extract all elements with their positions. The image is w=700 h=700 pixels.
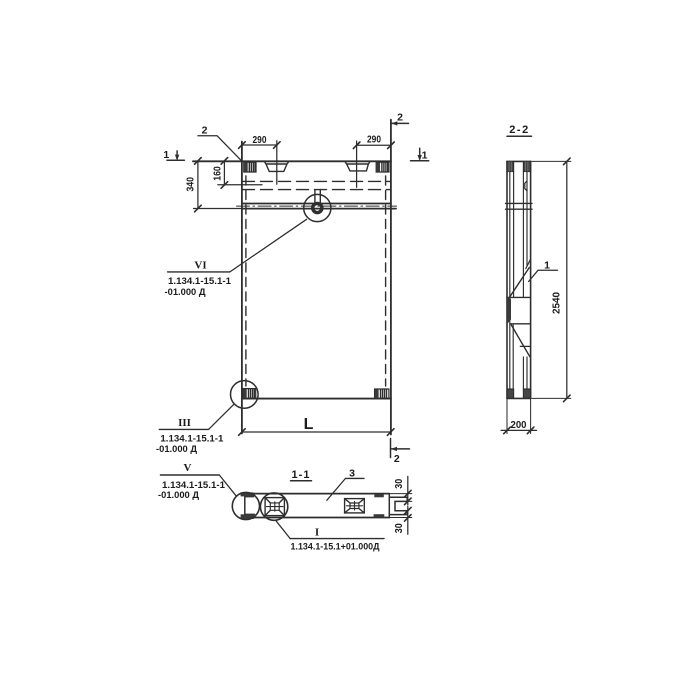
svg-text:III: III: [178, 417, 191, 429]
svg-text:3: 3: [349, 467, 355, 479]
svg-text:30: 30: [394, 478, 405, 488]
svg-text:L: L: [304, 416, 314, 433]
svg-text:1.134.1-15.1-1: 1.134.1-15.1-1: [168, 276, 232, 287]
svg-text:200: 200: [511, 419, 527, 431]
svg-text:1-1: 1-1: [292, 469, 311, 481]
svg-text:1: 1: [422, 149, 428, 161]
svg-text:30: 30: [394, 523, 405, 533]
svg-text:-01.000 Д: -01.000 Д: [165, 287, 206, 298]
svg-text:V: V: [184, 462, 192, 474]
svg-text:VI: VI: [194, 260, 206, 272]
svg-text:340: 340: [184, 177, 196, 192]
svg-text:2-2: 2-2: [509, 124, 529, 136]
svg-text:1.134.1-15.1+01.000Д: 1.134.1-15.1+01.000Д: [291, 541, 380, 552]
svg-text:160: 160: [212, 166, 224, 181]
svg-text:-01.000 Д: -01.000 Д: [156, 444, 197, 455]
svg-text:290: 290: [253, 134, 267, 146]
svg-text:290: 290: [367, 134, 381, 146]
svg-text:2: 2: [397, 111, 403, 123]
svg-text:1: 1: [163, 149, 169, 161]
svg-text:-01.000 Д: -01.000 Д: [158, 490, 199, 501]
svg-text:I: I: [315, 527, 319, 539]
svg-text:2: 2: [202, 124, 208, 136]
svg-text:1: 1: [544, 259, 550, 271]
svg-text:2: 2: [394, 453, 400, 465]
svg-text:2540: 2540: [551, 292, 563, 314]
